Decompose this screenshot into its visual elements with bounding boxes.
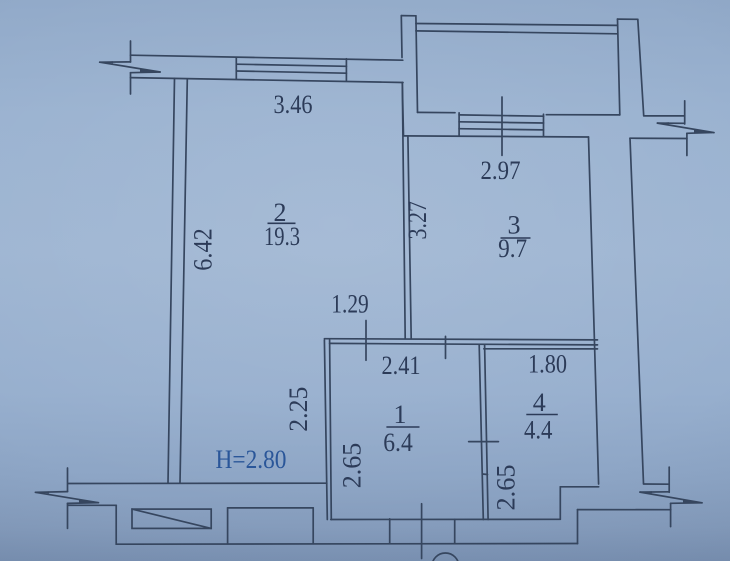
svg-text:4.4: 4.4 [524,416,553,445]
svg-text:6.42: 6.42 [189,228,218,271]
svg-text:6.4: 6.4 [383,428,413,457]
svg-text:2.41: 2.41 [382,351,421,380]
svg-text:1.29: 1.29 [331,290,369,319]
svg-text:2.97: 2.97 [481,156,521,185]
svg-text:2.65: 2.65 [492,465,521,511]
svg-text:3.27: 3.27 [403,201,432,240]
svg-text:H=2.80: H=2.80 [216,445,287,474]
svg-text:1: 1 [394,400,407,429]
svg-text:9.7: 9.7 [498,234,527,263]
svg-text:2.65: 2.65 [338,443,367,489]
svg-text:2.25: 2.25 [284,387,313,432]
svg-text:4: 4 [533,388,546,417]
svg-text:3.46: 3.46 [274,90,313,119]
svg-text:1.80: 1.80 [528,350,567,379]
svg-text:19.3: 19.3 [264,222,300,251]
